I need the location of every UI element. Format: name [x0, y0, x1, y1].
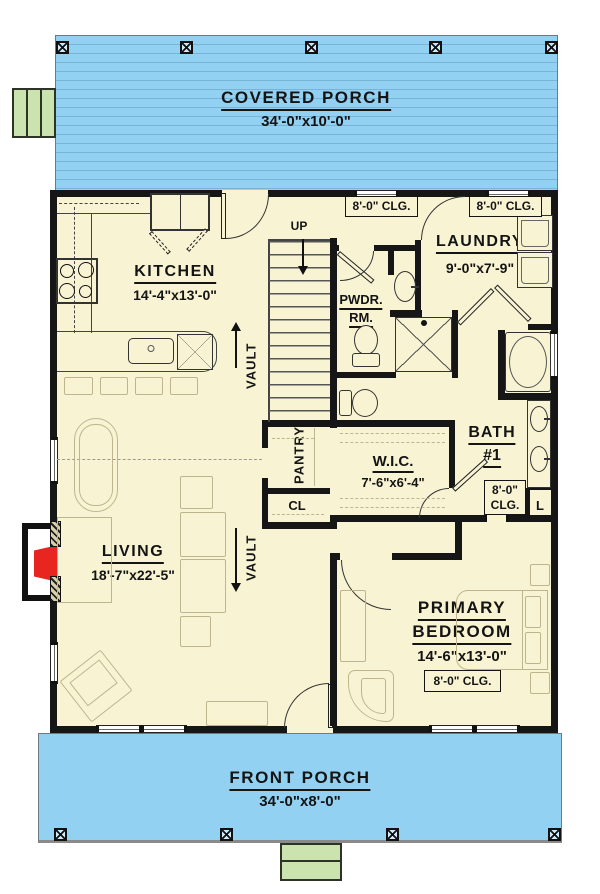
porch-post-icon [429, 41, 442, 54]
up-arrow-shaft [302, 239, 304, 267]
powder-room-label-1: PWDR. [339, 292, 382, 310]
closet-shelf-line [272, 438, 314, 439]
bench-sofa [206, 701, 268, 726]
counter-edge [57, 213, 150, 214]
wall [390, 310, 422, 317]
porch-post-icon [180, 41, 193, 54]
floor-plan: COVERED PORCH 34'-0"x10'-0" FRONT PORCH … [0, 0, 600, 894]
window [550, 331, 558, 379]
porch-post-icon [220, 828, 233, 841]
wall [262, 522, 337, 529]
wall [449, 515, 485, 522]
bath-label-2: #1 [483, 447, 501, 468]
washer [517, 215, 553, 251]
closet-label: CL [288, 498, 305, 513]
window [50, 437, 58, 484]
porch-post-icon [548, 828, 561, 841]
vault-label: VAULT [243, 522, 259, 594]
kitchen-dims: 14'-4"x13'-0" [133, 287, 217, 303]
dryer [517, 252, 553, 288]
ceiling-height-note: 8'-0" CLG. [345, 196, 418, 217]
wic-dims: 7'-6"x6'-4" [361, 475, 424, 490]
vault-arrow-shaft [235, 330, 237, 368]
closet-shelf-line [340, 498, 445, 499]
nightstand [530, 672, 550, 694]
wall [449, 427, 455, 488]
burner-icon [60, 264, 74, 278]
toilet-bowl [352, 389, 378, 417]
up-arrow-head-icon [298, 266, 308, 275]
front-porch-label: FRONT PORCH [229, 768, 370, 791]
front-steps [280, 843, 342, 881]
kitchen-label: KITCHEN [134, 263, 216, 284]
porch-post-icon [305, 41, 318, 54]
dining-table [74, 418, 118, 512]
bar-stool [135, 377, 163, 395]
vanity-sink [530, 406, 548, 432]
porch-post-icon [545, 41, 558, 54]
wall [330, 238, 337, 428]
wall [530, 488, 558, 490]
wall [455, 522, 462, 560]
clg-line1: 8'-0" [492, 483, 518, 498]
sofa-section [180, 559, 226, 613]
refrigerator [150, 193, 210, 231]
wall [268, 488, 330, 494]
wall [330, 420, 455, 427]
wall [505, 393, 558, 400]
bed [456, 590, 548, 670]
nightstand [530, 564, 550, 586]
porch-post-icon [386, 828, 399, 841]
wall [330, 553, 337, 726]
dishwasher [177, 334, 213, 370]
bar-stool [170, 377, 198, 395]
side-table [180, 476, 213, 509]
ceiling-height-note: 8'-0" CLG. [424, 670, 501, 692]
pantry-label: PANTRY [290, 424, 308, 486]
window [429, 725, 475, 733]
wall [528, 324, 558, 330]
porch-post-icon [54, 828, 67, 841]
laundry-label: LAUNDRY [436, 233, 524, 254]
toilet-bowl [354, 325, 378, 355]
dresser [340, 590, 366, 662]
vault-label: VAULT [243, 330, 259, 402]
bar-stool [100, 377, 128, 395]
wall [392, 553, 462, 560]
laundry-dims: 9'-0"x7'-9" [446, 260, 514, 276]
bath-bedroom-opening [485, 515, 508, 522]
wall [508, 515, 558, 522]
stairs-up-label: UP [291, 219, 308, 233]
burner-icon [78, 262, 94, 278]
clg-line2: CLG. [491, 498, 520, 513]
fireplace-hearth [57, 517, 112, 603]
wall [262, 420, 268, 448]
closet-shelf-line [340, 507, 445, 508]
bathtub [505, 332, 551, 392]
closet-shelf-line [272, 514, 324, 515]
closet-shelf-edge [314, 428, 315, 486]
burner-icon [59, 283, 75, 299]
pedestal-sink [394, 271, 416, 302]
bath-label-1: BATH [468, 424, 515, 445]
wic-label: W.I.C. [373, 453, 414, 473]
toilet-tank [339, 390, 352, 416]
wall [388, 251, 394, 275]
porch-post-icon [56, 41, 69, 54]
window [96, 725, 142, 733]
ceiling-height-note: 8'-0" CLG. [469, 196, 542, 217]
shower [395, 317, 452, 372]
vault-arrow-down-icon [231, 583, 241, 592]
side-table [180, 616, 211, 647]
vault-arrow-shaft [235, 528, 237, 584]
closet-shelf-line [340, 433, 445, 434]
covered-porch-label: COVERED PORCH [221, 88, 391, 111]
wall [330, 372, 396, 378]
burner-icon [79, 285, 92, 298]
ceiling-height-note: 8'-0" CLG. [484, 480, 526, 515]
vanity-sink [530, 446, 548, 472]
window [50, 642, 58, 684]
covered-porch-dims: 34'-0"x10'-0" [261, 113, 351, 130]
wall [374, 245, 421, 251]
kitchen-sink [128, 338, 174, 364]
side-steps [12, 88, 56, 138]
window [474, 725, 520, 733]
toilet-tank [352, 353, 380, 367]
linen-closet-label: L [536, 498, 544, 513]
closet-shelf-line [340, 442, 445, 443]
sofa-section [180, 512, 226, 557]
wall [498, 330, 505, 400]
upper-cabinet-line [59, 203, 139, 204]
front-porch-dims: 34'-0"x8'-0" [259, 793, 340, 810]
window [141, 725, 187, 733]
bar-stool [64, 377, 93, 395]
